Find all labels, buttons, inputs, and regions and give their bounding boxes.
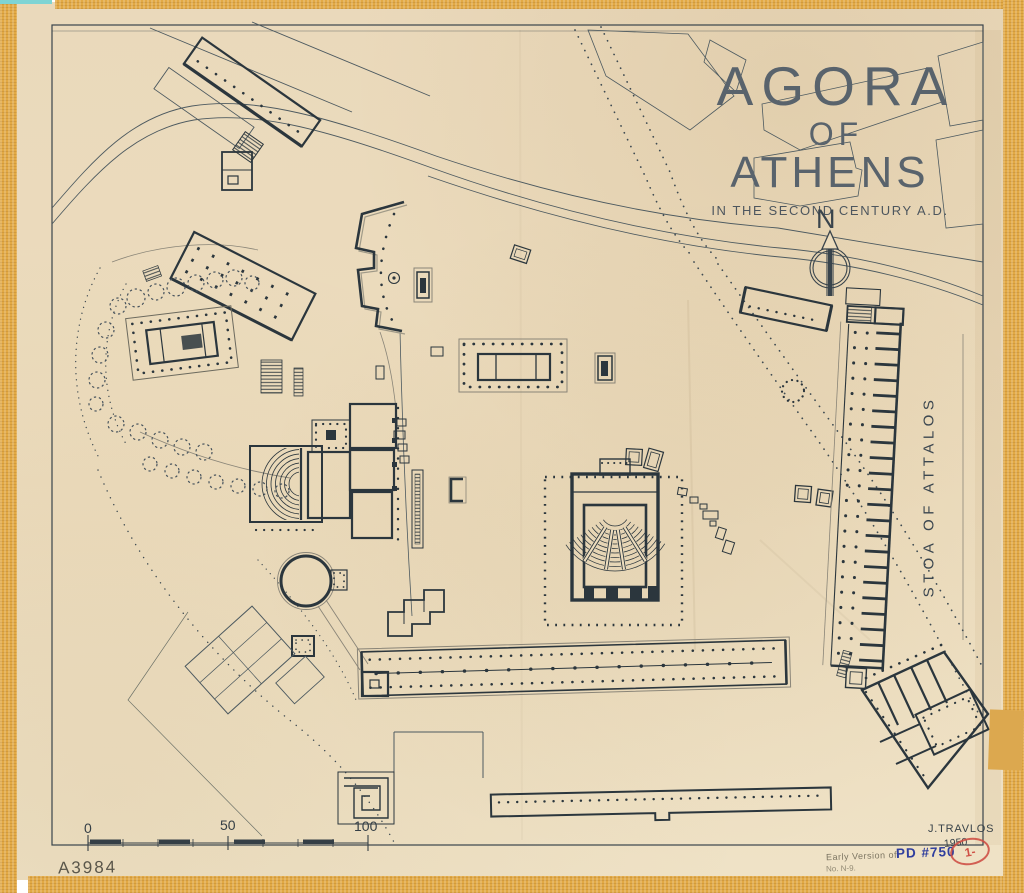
north-label: N bbox=[816, 204, 836, 235]
tape-left bbox=[0, 4, 17, 893]
scale-tick-0: 0 bbox=[84, 820, 92, 836]
north-arrow bbox=[810, 231, 850, 296]
author-signature: J.TRAVLOS bbox=[928, 823, 994, 835]
scale-bar bbox=[88, 835, 368, 851]
scanned-site-plan: AGORA OF ATHENS IN THE SECOND CENTURY A.… bbox=[0, 0, 1024, 893]
tholos bbox=[278, 553, 348, 610]
tape-patch bbox=[988, 709, 1024, 770]
tape-top bbox=[55, 0, 1013, 9]
negative-number: A3984 bbox=[58, 857, 118, 878]
trees bbox=[89, 270, 289, 498]
stamp-mark: 1- bbox=[964, 844, 977, 860]
altar-monument bbox=[414, 268, 432, 302]
scale-tick-50: 50 bbox=[220, 817, 236, 833]
scale-tick-100: 100 bbox=[354, 818, 377, 834]
round-monument bbox=[782, 380, 804, 402]
northeast-stoa bbox=[740, 287, 831, 331]
scan-edge-artifact bbox=[0, 0, 52, 4]
map-title-line3: ATHENS bbox=[700, 148, 960, 198]
stoa-of-attalos bbox=[823, 288, 905, 671]
central-stairs bbox=[261, 360, 303, 396]
map-title-line1: AGORA bbox=[706, 54, 966, 118]
pencil-note-line2: No. N-9. bbox=[826, 863, 856, 873]
square-monument bbox=[845, 667, 866, 688]
library-of-pantainos bbox=[862, 642, 988, 788]
stoa-of-zeus bbox=[356, 202, 407, 334]
south-stoa bbox=[491, 787, 832, 823]
building-north-of-middle-stoa bbox=[388, 590, 444, 636]
temple-of-ares bbox=[459, 339, 615, 392]
odeion bbox=[545, 453, 682, 625]
tape-bottom bbox=[28, 876, 1012, 893]
middle-stoa bbox=[357, 637, 790, 699]
hephaisteion-temple bbox=[126, 306, 239, 380]
spiral-structure bbox=[338, 772, 394, 824]
temple-terrace-stairs bbox=[143, 266, 162, 282]
stoa-of-attalos-label: STOA OF ATTALOS bbox=[921, 367, 938, 627]
small-monuments bbox=[510, 245, 833, 554]
drawing-reference: PD #750 bbox=[896, 844, 956, 861]
hatched-monument bbox=[233, 132, 264, 163]
